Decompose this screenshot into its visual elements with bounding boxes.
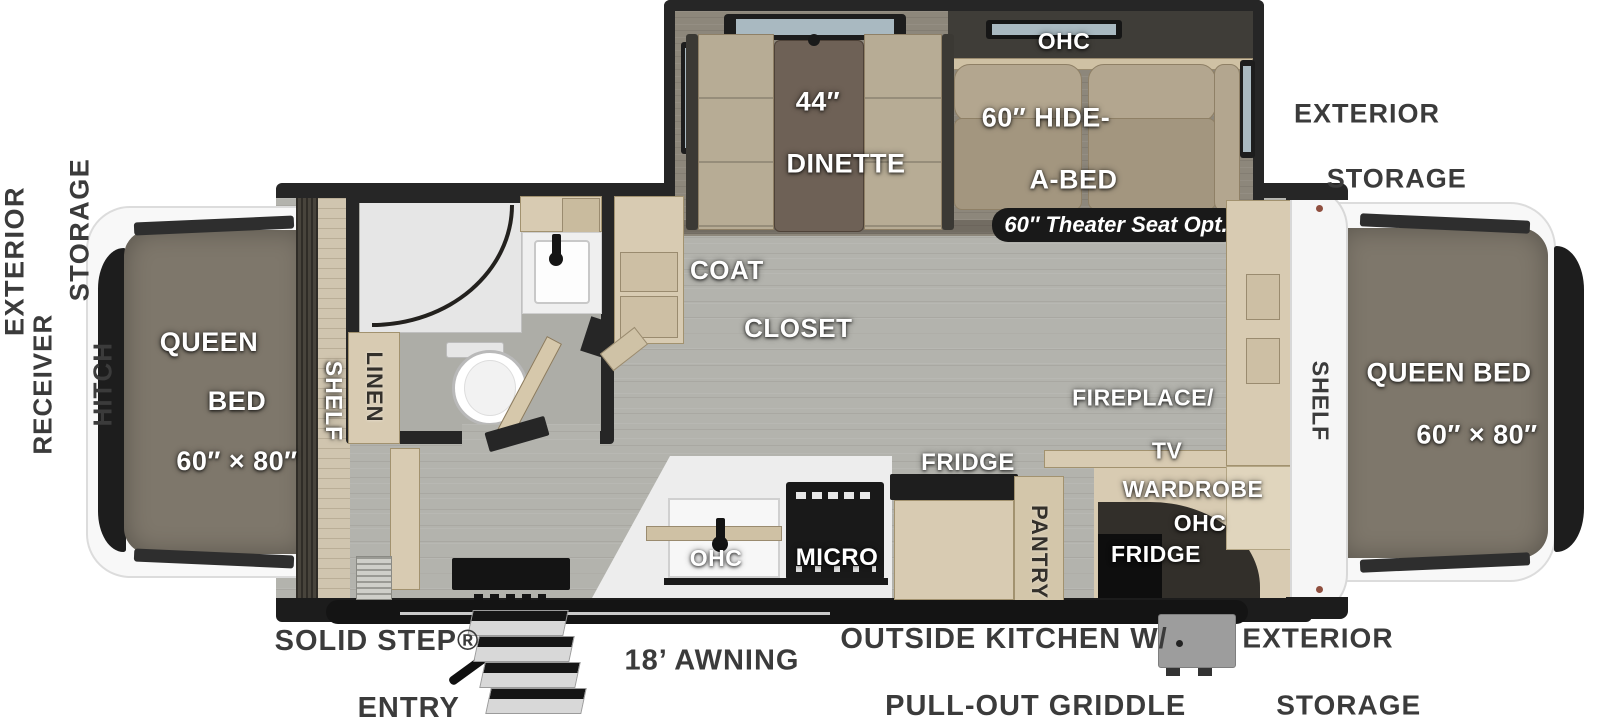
dinette-light-fixture [808, 34, 820, 46]
solid-step-entry-label: SOLID STEP® ENTRY [275, 625, 480, 720]
kitchen-ohc-label: OHC [690, 545, 743, 571]
bath-sink [534, 240, 590, 304]
left-lower-cabinet [390, 448, 420, 590]
front-exterior-storage-label: EXTERIOR STORAGE [1267, 97, 1467, 194]
right-bed-end-band [1554, 246, 1584, 552]
rv-floorplan: 60″ Theater Seat Opt. [0, 0, 1600, 720]
awning-fabric-line [400, 612, 830, 615]
right-cabinet-drawer-2 [1246, 338, 1280, 384]
griddle-box-foot-right [1198, 668, 1212, 676]
accordion-shade [356, 556, 392, 600]
left-privacy-curtain [296, 198, 318, 598]
entry-step-2 [473, 636, 575, 662]
wardrobe-ohc-label: OHC [1174, 510, 1227, 536]
dinette-window-glass [736, 19, 894, 35]
sofa-armrest [1214, 64, 1240, 212]
right-wall-screw-bottom [1316, 586, 1323, 593]
right-wall-cap-bottom [1286, 597, 1348, 619]
theater-seat-option-badge: 60″ Theater Seat Opt. [992, 208, 1240, 242]
linen-label: LINEN [361, 352, 387, 423]
rear-exterior-storage-label: EXTERIOR STORAGE [1215, 622, 1421, 720]
dinette-end-panel-right [942, 34, 954, 230]
entry-step-3 [479, 662, 581, 688]
coat-closet-drawer-1 [620, 252, 678, 292]
entry-step-1 [467, 610, 569, 636]
wardrobe-label: WARDROBE [1123, 476, 1264, 502]
fridge-body [894, 500, 1014, 600]
slide-ohc-label: OHC [1038, 28, 1091, 54]
stove-controls [796, 492, 876, 499]
right-cabinet-drawer-1 [1246, 274, 1280, 320]
micro-label: MICRO [796, 544, 879, 572]
right-wall-screw-top [1316, 205, 1323, 212]
hideabed-label: 60″ HIDE- A-BED [974, 102, 1117, 195]
outside-kitchen-label: OUTSIDE KITCHEN W/ PULL-OUT GRIDDLE [822, 623, 1187, 720]
fridge-label: FRIDGE [921, 449, 1015, 477]
left-bed-label: QUEEN BED 60″ × 80″ [120, 328, 297, 476]
counter-front-edge [664, 578, 888, 585]
bath-faucet-knob [549, 252, 563, 266]
receiver-hitch-label: 2″ RECEIVER HITCH [0, 314, 118, 513]
right-cabinet-column [1226, 200, 1292, 466]
dinette-end-panel-left [686, 34, 698, 230]
dinette-label: 44″ DINETTE [730, 86, 905, 179]
left-shelf-label: SHELF [321, 361, 347, 441]
fireplace-tv-label: FIREPLACE/ TV [1072, 384, 1214, 463]
entry-step-4 [485, 688, 587, 714]
right-shelf-label: SHELF [1307, 361, 1334, 441]
pantry-label: PANTRY [1026, 505, 1052, 599]
right-bed-label: QUEEN BED 60″ × 80″ [1360, 357, 1537, 450]
coat-closet-label: COAT CLOSET [690, 256, 853, 343]
entry-step-mat [452, 558, 570, 590]
slide-right-window-glass [1243, 66, 1251, 152]
theater-seat-option-label: 60″ Theater Seat Opt. [1004, 212, 1227, 238]
fridge-top [890, 474, 1018, 500]
wardrobe-fridge-label: FRIDGE [1111, 541, 1201, 567]
awning-label: 18’ AWNING [625, 644, 800, 679]
